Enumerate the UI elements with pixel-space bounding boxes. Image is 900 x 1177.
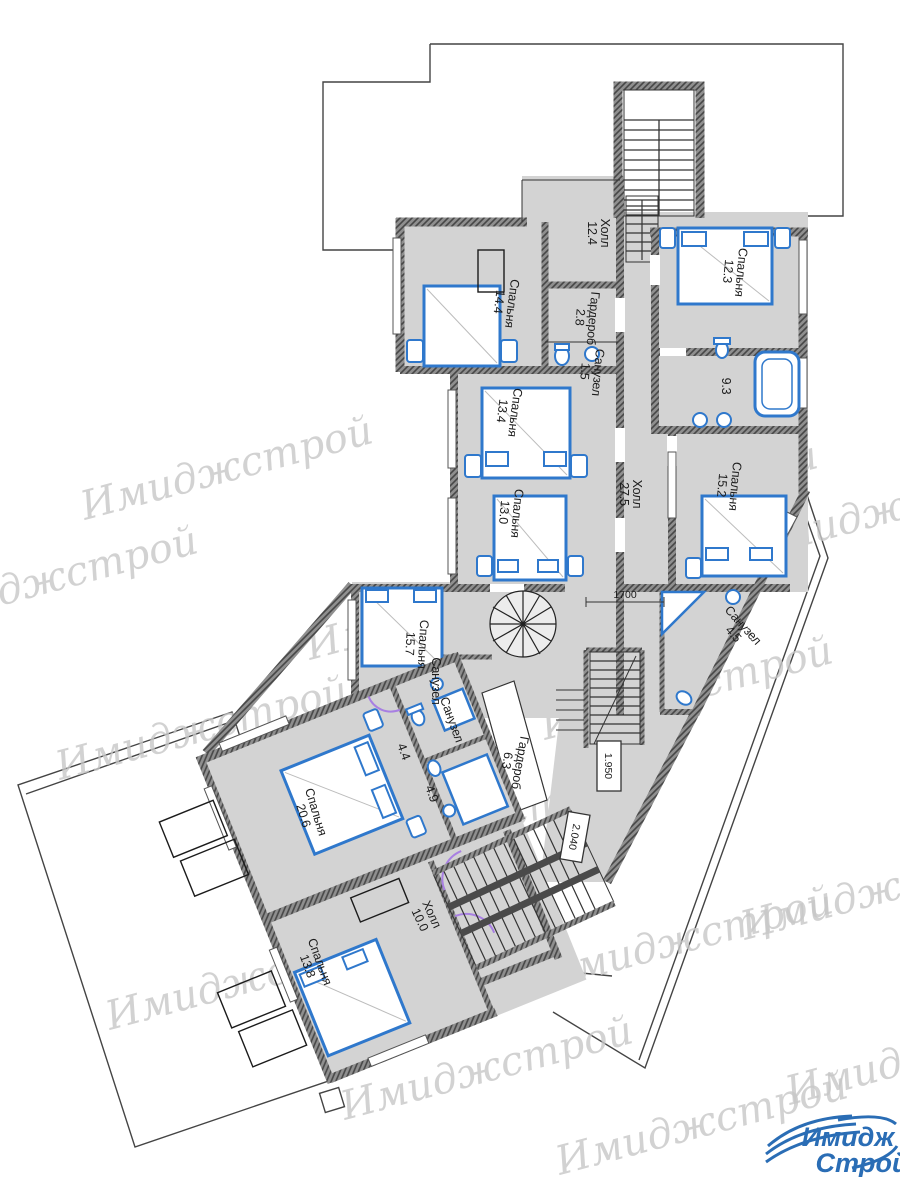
- svg-text:15.7: 15.7: [402, 631, 417, 655]
- floor-plan-page: Имиджстрой Имиджстрой Имиджстрой Имиджст…: [0, 0, 900, 1177]
- room-label-bath-9-3: 9.3: [719, 378, 733, 395]
- svg-text:1700: 1700: [613, 589, 637, 601]
- watermark-text: Имиджстрой: [735, 827, 900, 949]
- svg-text:14.4: 14.4: [491, 289, 508, 314]
- svg-text:13.0: 13.0: [496, 500, 512, 525]
- dimension-1950: 1.950: [597, 741, 621, 791]
- svg-text:Холл: Холл: [630, 480, 644, 509]
- svg-text:Холл: Холл: [598, 219, 612, 248]
- svg-text:9.3: 9.3: [719, 378, 733, 395]
- svg-text:6.3: 6.3: [499, 751, 516, 770]
- bed-icon: [465, 388, 587, 478]
- company-logo: Имидж Строй: [766, 1116, 900, 1177]
- bed-icon: [477, 496, 583, 580]
- svg-text:12.3: 12.3: [720, 259, 736, 284]
- svg-text:27.5: 27.5: [617, 482, 631, 506]
- watermark-text: Имиджстрой: [780, 992, 900, 1114]
- watermark-text: Имиджстрой: [75, 407, 378, 529]
- svg-text:13.4: 13.4: [494, 398, 511, 423]
- svg-text:15.2: 15.2: [714, 473, 730, 498]
- svg-text:Строй: Строй: [816, 1148, 900, 1177]
- room-label-hall-27-5: Холл 27.5: [617, 480, 644, 509]
- svg-text:1.950: 1.950: [602, 753, 614, 779]
- watermark-text: Имиджстрой: [0, 517, 203, 639]
- room-label-hall-top: Холл 12.4: [585, 219, 612, 248]
- svg-text:2.8: 2.8: [572, 308, 587, 326]
- spiral-staircase: [490, 591, 556, 657]
- svg-text:12.4: 12.4: [585, 221, 599, 245]
- floor-plan-drawing: Имиджстрой Имиджстрой Имиджстрой Имиджст…: [0, 0, 900, 1177]
- svg-text:1.5: 1.5: [577, 362, 592, 380]
